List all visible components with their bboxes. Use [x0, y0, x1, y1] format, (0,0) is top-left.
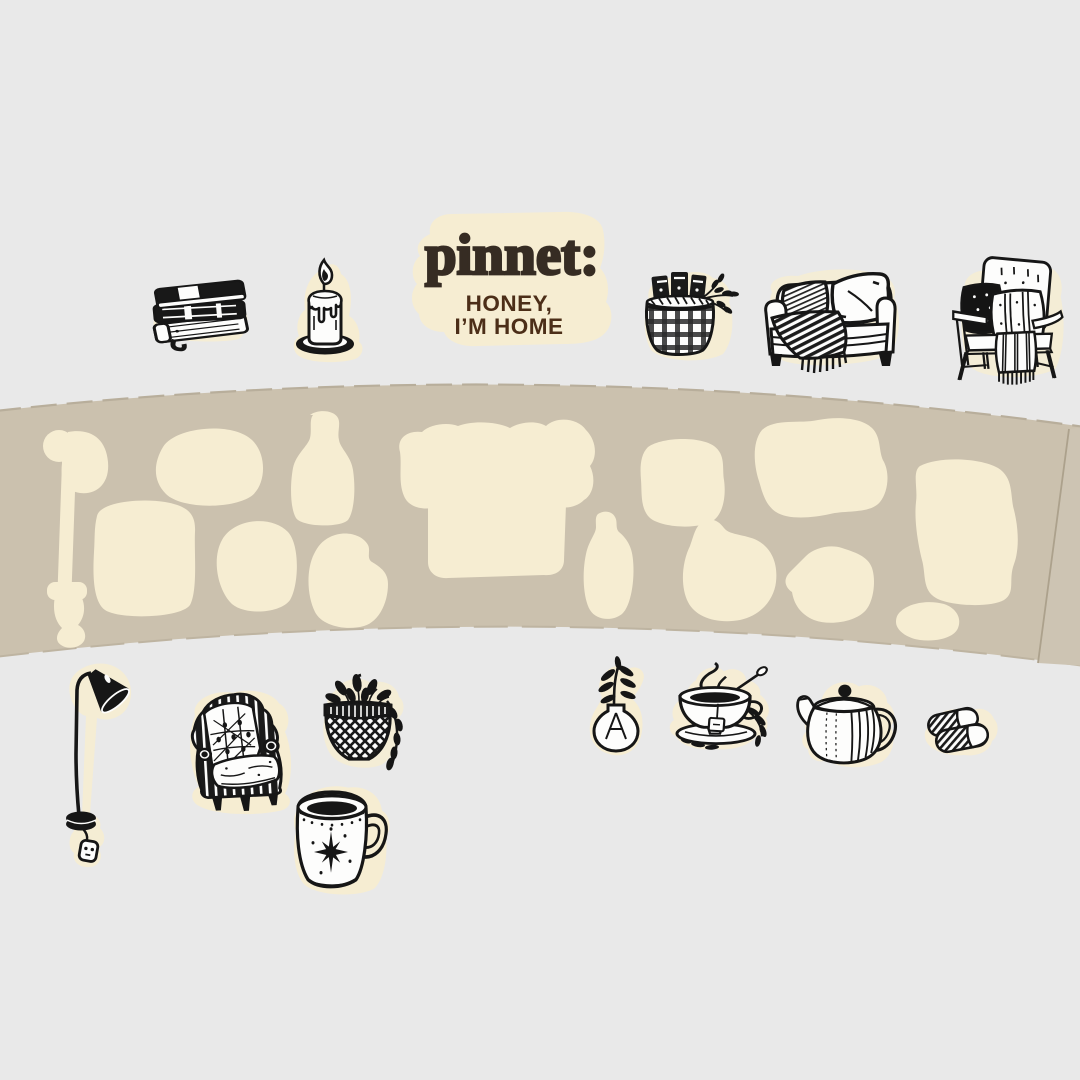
- svg-text:pinnet:: pinnet:: [425, 224, 599, 287]
- svg-text:I’M HOME: I’M HOME: [455, 314, 564, 339]
- svg-text:HONEY,: HONEY,: [466, 291, 553, 316]
